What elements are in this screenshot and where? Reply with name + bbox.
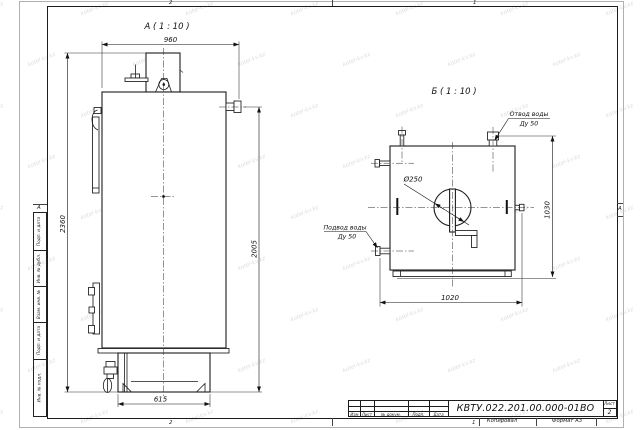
drawing-canvas: 960 2360 2005 615 А ( 1 : 10 ): [0, 0, 644, 430]
view-a-boiler-side: 960 2360 2005 615 А ( 1 : 10 ): [59, 22, 262, 407]
crank-arm: [455, 231, 477, 236]
hinge-knob-bottom: [89, 326, 95, 334]
inlet-callout-line2: Ду 50: [337, 234, 356, 241]
dim-2005-label: 2005: [251, 240, 259, 258]
boiler-body-side: [102, 92, 226, 348]
dim-2360-label: 2360: [59, 215, 67, 233]
chimney-box: [146, 53, 180, 92]
outlet-callout-line1: Отвод воды: [510, 111, 549, 118]
view-b-title: Б ( 1 : 10 ): [431, 87, 476, 97]
upper-door-handle-base: [94, 108, 101, 114]
dim-1030-label: 1030: [544, 201, 552, 219]
view-a-center-dot: [162, 195, 165, 198]
damper-pivot-center: [163, 83, 166, 86]
hinge-knob-top: [89, 288, 95, 296]
dim-960-label: 960: [164, 36, 178, 44]
crank-grip: [472, 236, 478, 248]
view-a-title: А ( 1 : 10 ): [143, 22, 189, 32]
outlet-callout-leader: [495, 119, 509, 141]
dim-615-label: 615: [154, 396, 168, 404]
dim-1020-label: 1020: [441, 294, 459, 302]
drawing-sheet: kotel-kv.kzkotel-kv.kzkotel-kv.kzkotel-k…: [0, 0, 644, 430]
latch-stem: [107, 374, 114, 379]
bottom-rail: [393, 271, 511, 277]
latch-cap: [106, 362, 115, 368]
inlet-callout-line1: Подвод воды: [324, 225, 367, 232]
view-b-boiler-back: Ø250 1030 1020 Отвод воды Ду 50 Подвод в…: [324, 87, 557, 307]
dim-dia250-label: Ø250: [403, 176, 423, 184]
inlet-callout-leader: [366, 232, 378, 249]
weld-tick-right: [506, 200, 508, 214]
damper-lever-bar: [125, 78, 148, 82]
latch-body: [104, 367, 117, 374]
outlet-callout-line2: Ду 50: [519, 121, 538, 128]
base-pedestal: [118, 353, 210, 392]
hinge-knob-middle: [89, 307, 95, 313]
weld-tick-left: [396, 198, 398, 215]
